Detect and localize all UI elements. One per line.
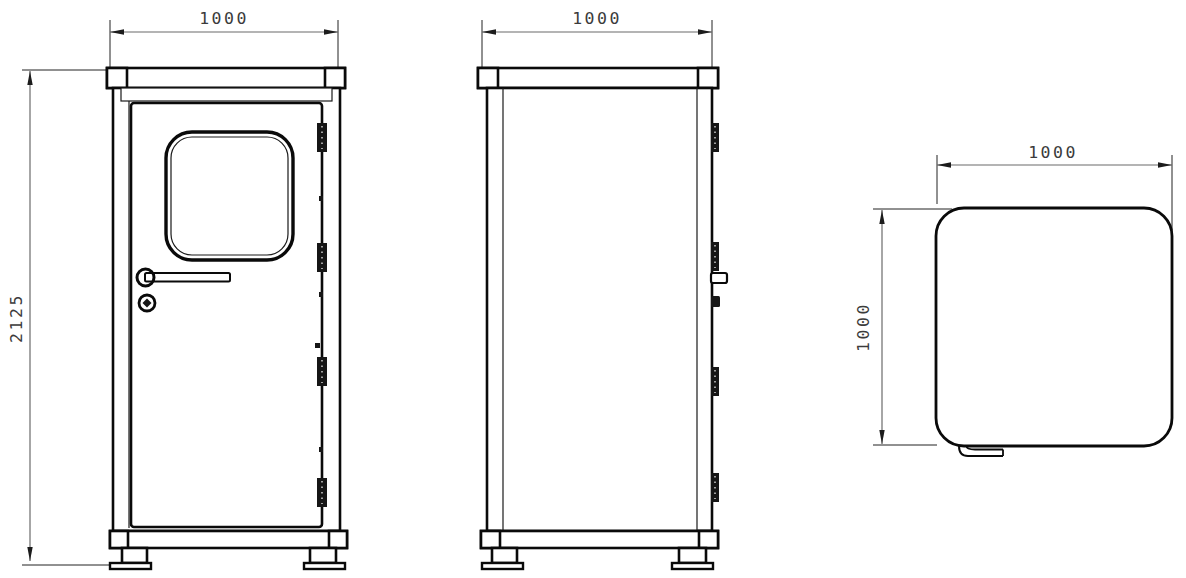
handle-side-profile: [711, 273, 727, 283]
foot-plate: [482, 563, 523, 569]
side-width-label: 1000: [572, 9, 622, 28]
cap-corner-left: [478, 68, 498, 88]
hinge-1: [317, 123, 327, 152]
cap-body: [478, 68, 718, 88]
base-rail: [481, 531, 718, 548]
foot-stem: [310, 548, 336, 563]
side-cabinet-body: [487, 88, 712, 531]
front-height-label: 2125: [7, 293, 26, 343]
enclosure-drawing: 1000 2125: [0, 0, 1186, 578]
door-lock: [139, 295, 155, 311]
base-rail: [110, 531, 347, 548]
base-corner-right: [699, 531, 718, 548]
front-view: 1000 2125: [7, 9, 347, 569]
edge-mark: [315, 343, 320, 348]
hinge-4: [317, 478, 327, 507]
foot-plate: [110, 563, 151, 569]
cap-corner-right: [325, 68, 345, 88]
cap-corner-right: [698, 68, 718, 88]
foot-plate: [672, 563, 713, 569]
edge-mark: [319, 292, 323, 297]
top-view: 1000 1000: [854, 143, 1172, 456]
side-protrusions: [711, 123, 727, 502]
top-frame-band: [121, 88, 332, 101]
base-corner-left: [110, 531, 128, 548]
handle-lever: [145, 273, 230, 282]
arrowhead-bottom: [27, 547, 32, 561]
front-door: [131, 103, 327, 527]
handle-outer-edge: [959, 446, 1003, 456]
front-width-dimension: 1000: [110, 9, 338, 67]
front-width-label: 1000: [199, 9, 249, 28]
base-corner-left: [481, 531, 500, 548]
edge-mark: [319, 447, 323, 452]
base-corner-right: [329, 531, 347, 548]
arrowhead-bottom: [879, 430, 884, 444]
drawing-canvas: 1000 2125: [0, 0, 1186, 578]
foot-right: [672, 548, 713, 569]
handle-top-profile: [959, 446, 1003, 456]
foot-plate: [304, 563, 345, 569]
foot-right: [304, 548, 345, 569]
front-top-cap: [107, 68, 345, 88]
front-height-dimension: 2125: [7, 70, 113, 565]
hinge-3: [317, 357, 327, 386]
foot-left: [482, 548, 523, 569]
cap-corner-left: [107, 68, 127, 88]
edge-mark: [319, 196, 323, 201]
front-base: [110, 531, 347, 569]
lock-side-profile: [711, 296, 720, 307]
foot-stem: [122, 548, 147, 563]
arrowhead-left: [937, 162, 951, 167]
side-view: 1000: [478, 9, 727, 569]
foot-stem: [492, 548, 517, 563]
roof-outline: [936, 208, 1172, 446]
side-base: [481, 531, 718, 569]
arrowhead-right: [1158, 162, 1172, 167]
foot-stem: [679, 548, 706, 563]
body-shell: [487, 88, 712, 531]
arrowhead-right: [324, 29, 338, 34]
cap-body: [107, 68, 345, 88]
arrowhead-left: [482, 29, 496, 34]
arrowhead-right: [698, 29, 712, 34]
arrowhead-left: [110, 29, 124, 34]
top-width-label: 1000: [1028, 143, 1078, 162]
hinge-2: [317, 243, 327, 272]
side-top-cap: [478, 68, 718, 88]
foot-left: [110, 548, 151, 569]
arrowhead-top: [879, 210, 884, 224]
side-width-dimension: 1000: [482, 9, 712, 67]
top-depth-label: 1000: [854, 302, 873, 352]
arrowhead-top: [27, 71, 32, 85]
